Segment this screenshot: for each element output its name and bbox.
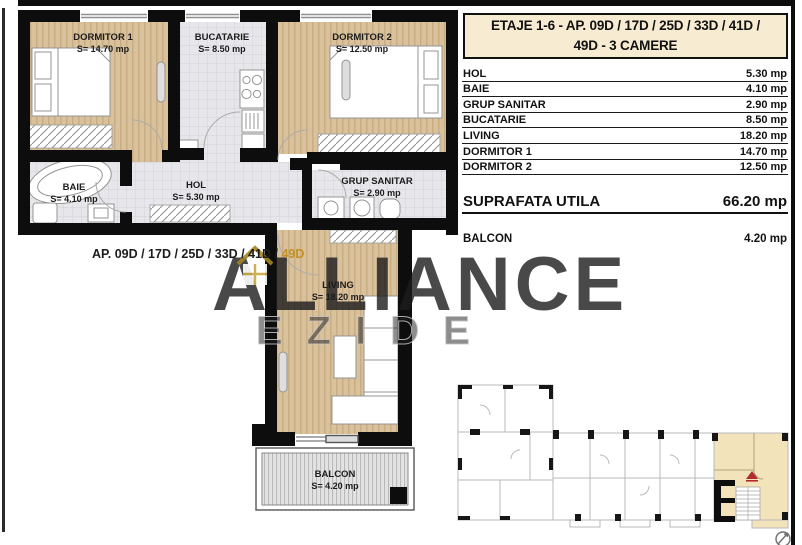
washer-glyph [318, 197, 344, 219]
title-line1: ETAJE 1-6 - AP. 09D / 17D / 25D / 33D / … [491, 16, 760, 36]
balcony-pillar [390, 487, 407, 504]
svg-text:LIVING: LIVING [322, 280, 354, 291]
radiator-glyph-living [279, 352, 287, 392]
svg-text:DORMITOR 2: DORMITOR 2 [332, 32, 391, 43]
key-plan [458, 385, 790, 545]
table-row: BUCATARIE 8.50 mp [462, 113, 788, 129]
svg-text:HOL: HOL [186, 180, 206, 191]
hol-closet [150, 205, 230, 222]
svg-text:S= 12.50 mp: S= 12.50 mp [336, 44, 389, 54]
svg-text:DORMITOR 1: DORMITOR 1 [73, 32, 133, 43]
svg-text:S= 4.20 mp: S= 4.20 mp [311, 481, 359, 491]
room-label: BUCATARIE [463, 114, 526, 126]
table-row: HOL 5.30 mp [462, 66, 788, 82]
svg-text:BUCATARIE: BUCATARIE [195, 32, 250, 43]
room-value: 5.30 mp [746, 68, 787, 80]
svg-text:BALCON: BALCON [315, 469, 356, 480]
svg-text:S= 8.50 mp: S= 8.50 mp [198, 44, 246, 54]
title-line2: 49D - 3 CAMERE [574, 36, 678, 56]
balcony-value: 4.20 mp [744, 233, 787, 245]
room-value: 2.90 mp [746, 99, 787, 111]
apartment-caption: AP. 09D / 17D / 25D / 33D / 41D / 49D [92, 247, 304, 261]
total-label: SUPRAFATA UTILA [463, 193, 600, 210]
toilet-glyph-grup [380, 199, 400, 219]
svg-text:S= 5.30 mp: S= 5.30 mp [172, 192, 220, 202]
room-value: 18.20 mp [740, 130, 787, 142]
total-value: 66.20 mp [723, 193, 787, 210]
svg-text:S= 14.70 mp: S= 14.70 mp [77, 44, 130, 54]
balcony-sliding-door [296, 436, 358, 443]
sink-glyph-baie [88, 204, 114, 222]
area-table: HOL 5.30 mp BAIE 4.10 mp GRUP SANITAR 2.… [462, 66, 788, 175]
window-dormitor1 [81, 15, 147, 18]
room-label: GRUP SANITAR [463, 99, 546, 111]
window-bucatarie [186, 15, 239, 18]
compass-icon [776, 532, 790, 545]
svg-text:S= 2.90 mp: S= 2.90 mp [353, 188, 401, 198]
radiator-glyph-dormitor2 [342, 60, 350, 100]
table-row: GRUP SANITAR 2.90 mp [462, 97, 788, 113]
room-value: 4.10 mp [746, 83, 787, 95]
room-value: 12.50 mp [740, 161, 787, 173]
floor-plan-sheet: ALLIANCE EZIDE DORMITOR 1 S= 14.70 mp BU… [0, 0, 802, 545]
title-box: ETAJE 1-6 - AP. 09D / 17D / 25D / 33D / … [463, 13, 788, 59]
watermark-sub: EZIDE [256, 309, 494, 353]
dormitor2-closet [318, 134, 440, 155]
room-label: DORMITOR 1 [463, 146, 532, 158]
table-row: DORMITOR 2 12.50 mp [462, 160, 788, 176]
toilet-glyph-baie [33, 203, 57, 223]
table-row: LIVING 18.20 mp [462, 128, 788, 144]
table-row: DORMITOR 1 14.70 mp [462, 144, 788, 160]
window-dormitor2 [301, 15, 371, 18]
key-plan-stairs [736, 487, 760, 520]
sink-glyph-grup [350, 197, 374, 219]
table-row: BAIE 4.10 mp [462, 82, 788, 98]
svg-text:GRUP SANITAR: GRUP SANITAR [341, 176, 413, 187]
room-value: 8.50 mp [746, 114, 787, 126]
balcony-label: BALCON [463, 233, 512, 245]
room-label: DORMITOR 2 [463, 161, 532, 173]
room-label: LIVING [463, 130, 500, 142]
room-value: 14.70 mp [740, 146, 787, 158]
svg-text:S= 18.20 mp: S= 18.20 mp [312, 292, 365, 302]
apartment-caption-highlight: 49D [281, 247, 304, 261]
radiator-glyph-dormitor1 [157, 62, 165, 102]
room-label: BAIE [463, 83, 489, 95]
balcony-area-row: BALCON 4.20 mp [462, 229, 788, 245]
svg-text:S= 4.10 mp: S= 4.10 mp [50, 194, 98, 204]
svg-text:BAIE: BAIE [63, 182, 86, 193]
bed-glyph-dormitor1 [32, 48, 110, 116]
total-usable-area-row: SUPRAFATA UTILA 66.20 mp [462, 192, 788, 214]
dormitor1-closet [28, 125, 112, 148]
room-label: HOL [463, 68, 486, 80]
